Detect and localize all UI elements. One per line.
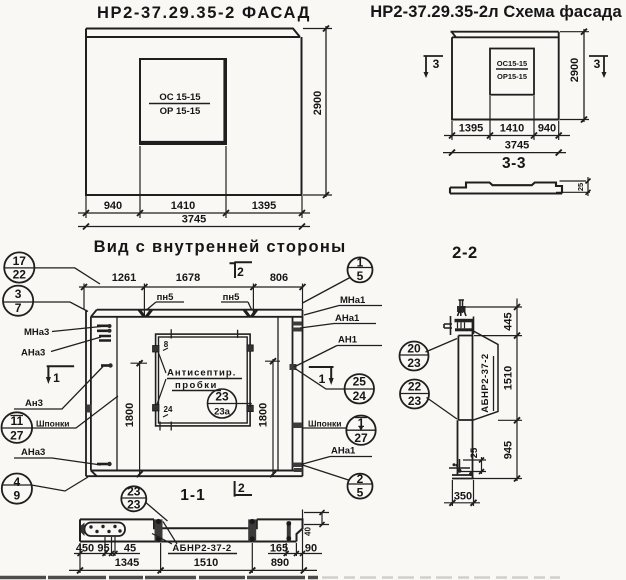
svg-text:445: 445 [503, 312, 515, 330]
svg-text:1261: 1261 [112, 272, 136, 284]
svg-text:АНа1: АНа1 [335, 313, 360, 324]
svg-text:23: 23 [408, 394, 422, 408]
svg-text:АБНР2-37-2: АБНР2-37-2 [480, 353, 491, 412]
svg-text:1510: 1510 [194, 557, 218, 569]
svg-text:НР2-37.29.35-2 ФАСАД: НР2-37.29.35-2 ФАСАД [97, 4, 311, 22]
svg-text:24: 24 [353, 389, 367, 403]
svg-text:ОР15-15: ОР15-15 [497, 72, 527, 81]
svg-text:Шпонки: Шпонки [308, 419, 341, 429]
svg-text:пробки: пробки [175, 380, 218, 391]
svg-text:3: 3 [433, 57, 440, 71]
svg-text:8: 8 [164, 340, 169, 349]
svg-text:3745: 3745 [182, 214, 206, 226]
svg-text:24: 24 [164, 405, 173, 414]
svg-text:23: 23 [215, 390, 229, 404]
svg-text:22: 22 [13, 268, 27, 282]
svg-text:945: 945 [503, 441, 515, 459]
svg-text:1: 1 [53, 371, 60, 385]
svg-text:2: 2 [237, 265, 244, 279]
svg-text:АН1: АН1 [338, 335, 358, 346]
svg-text:1410: 1410 [500, 123, 524, 135]
svg-text:2: 2 [238, 481, 245, 495]
svg-text:23: 23 [407, 356, 421, 370]
svg-text:ОС 15-15: ОС 15-15 [159, 92, 201, 103]
svg-text:40: 40 [304, 527, 313, 536]
svg-text:3745: 3745 [505, 140, 529, 152]
svg-text:АНа1: АНа1 [331, 446, 356, 457]
svg-text:1345: 1345 [115, 557, 139, 569]
svg-text:2900: 2900 [569, 58, 581, 82]
svg-text:22: 22 [408, 380, 422, 394]
svg-text:23: 23 [127, 485, 141, 499]
svg-text:1678: 1678 [176, 272, 200, 284]
svg-text:95: 95 [97, 543, 109, 555]
svg-text:1395: 1395 [459, 123, 483, 135]
svg-text:9: 9 [14, 489, 21, 503]
svg-text:940: 940 [104, 200, 122, 212]
svg-text:25: 25 [353, 375, 367, 389]
svg-text:1800: 1800 [124, 403, 136, 427]
svg-text:ОР 15-15: ОР 15-15 [160, 106, 201, 117]
svg-text:45: 45 [124, 543, 136, 555]
svg-text:450: 450 [76, 543, 94, 555]
svg-text:Шпонки: Шпонки [36, 419, 69, 429]
svg-text:2-2: 2-2 [452, 244, 478, 262]
svg-text:23: 23 [127, 498, 141, 512]
svg-text:165: 165 [270, 543, 288, 555]
svg-text:Антисептир.: Антисептир. [167, 368, 236, 379]
svg-text:3: 3 [594, 57, 601, 71]
svg-text:1800: 1800 [258, 403, 270, 427]
svg-text:2: 2 [357, 472, 364, 486]
svg-text:МНа1: МНа1 [340, 295, 366, 306]
svg-text:3-3: 3-3 [502, 155, 526, 172]
svg-text:1: 1 [357, 256, 364, 270]
svg-text:Ан3: Ан3 [25, 398, 43, 409]
svg-text:90: 90 [305, 543, 317, 555]
svg-text:25: 25 [469, 447, 480, 458]
svg-text:1-1: 1-1 [180, 487, 205, 504]
svg-text:7: 7 [15, 301, 22, 315]
svg-text:ОС15-15: ОС15-15 [497, 59, 527, 68]
svg-text:5: 5 [357, 486, 364, 500]
svg-text:806: 806 [270, 272, 288, 284]
svg-text:20: 20 [407, 342, 421, 356]
svg-text:Вид с внутренней стороны: Вид с внутренней стороны [94, 238, 347, 256]
svg-text:17: 17 [13, 254, 27, 268]
svg-text:1510: 1510 [503, 366, 515, 390]
svg-text:4: 4 [14, 475, 21, 489]
svg-text:940: 940 [538, 123, 556, 135]
svg-text:МНа3: МНа3 [24, 327, 49, 338]
svg-text:350: 350 [454, 491, 472, 503]
svg-text:3: 3 [15, 287, 22, 301]
svg-text:27: 27 [10, 429, 24, 443]
svg-text:1395: 1395 [252, 200, 276, 212]
svg-text:АНа3: АНа3 [21, 348, 45, 359]
svg-text:НР2-37.29.35-2л Схема фасада: НР2-37.29.35-2л Схема фасада [370, 3, 622, 21]
svg-text:25: 25 [576, 183, 585, 191]
svg-text:АБНР2-37-2: АБНР2-37-2 [172, 543, 231, 554]
svg-text:23а: 23а [214, 407, 231, 418]
svg-text:1410: 1410 [171, 200, 195, 212]
svg-text:5: 5 [357, 269, 364, 283]
svg-text:27: 27 [354, 431, 368, 445]
svg-text:1: 1 [319, 372, 326, 386]
svg-text:890: 890 [271, 557, 289, 569]
svg-text:2900: 2900 [312, 91, 324, 115]
svg-text:АНа3: АНа3 [21, 447, 45, 458]
